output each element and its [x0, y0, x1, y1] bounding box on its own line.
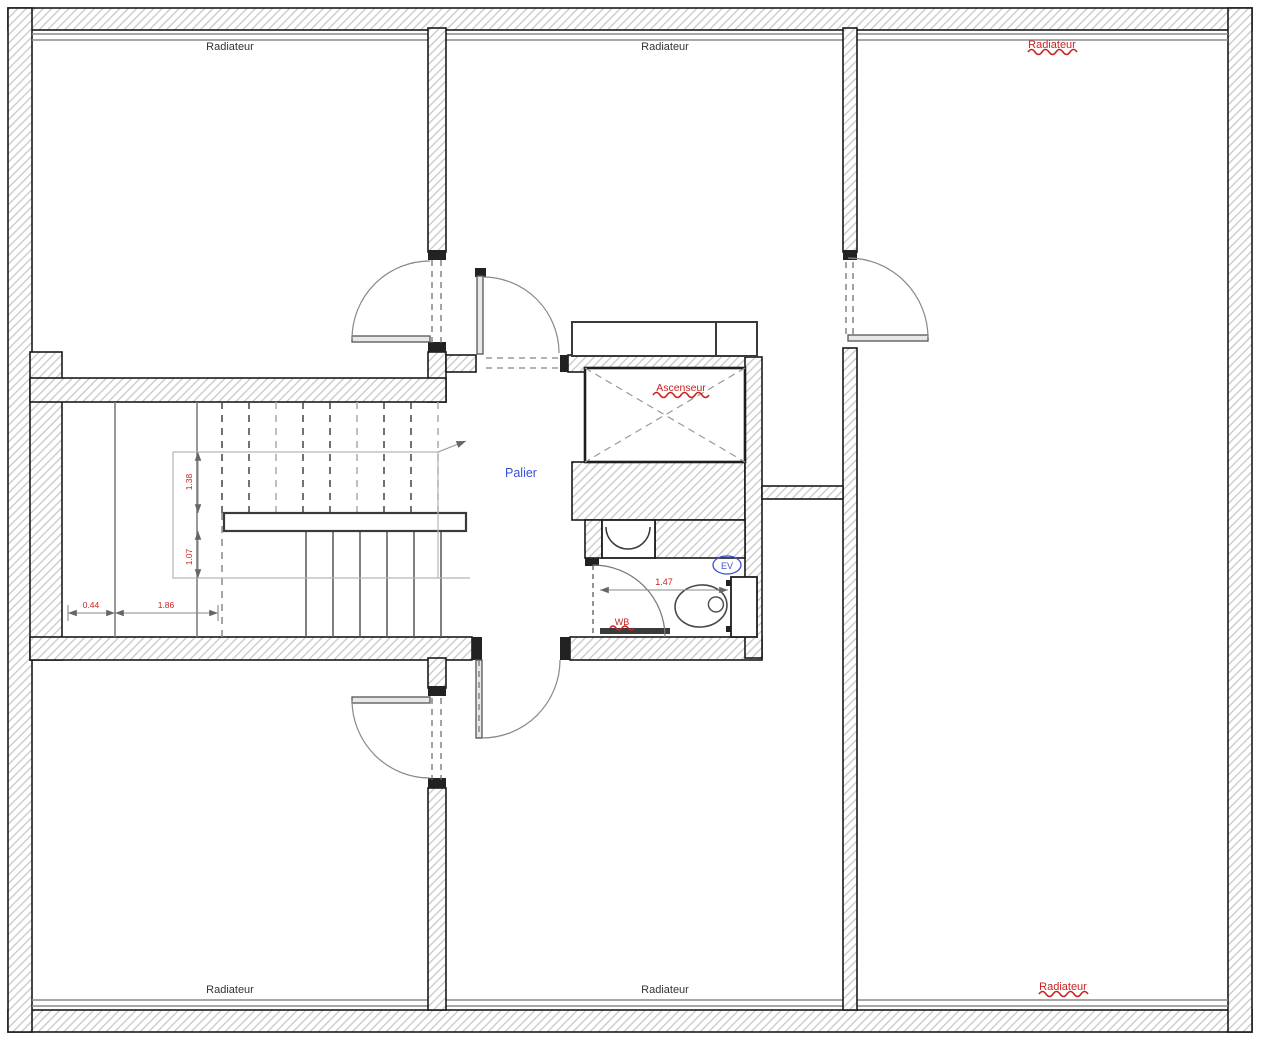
door-leaf — [352, 336, 430, 342]
label-wb: WB — [615, 617, 630, 627]
wall-v2-lower — [843, 348, 857, 1010]
door-leaf — [352, 697, 430, 703]
door-arc — [482, 660, 560, 738]
wall-sink-right — [655, 520, 745, 558]
door-arc — [483, 277, 559, 353]
label-dim-stair-rise-bottom: 1.07 — [184, 548, 194, 565]
label-radiateur-top-left: Radiateur — [206, 41, 254, 53]
wall-wc-bottom — [570, 637, 762, 660]
label-dim-stair-rise-top: 1.38 — [184, 473, 194, 490]
stair-dimensions — [68, 452, 218, 621]
door-cap — [428, 686, 446, 696]
label-radiateur-bottom-center: Radiateur — [641, 984, 689, 996]
label-radiateur-bottom-left: Radiateur — [206, 984, 254, 996]
door-cap — [428, 778, 446, 788]
door-cap — [428, 342, 446, 352]
label-radiateur-top-right: Radiateur — [1028, 39, 1076, 51]
door-arc — [848, 258, 928, 338]
door-cap — [428, 250, 446, 260]
door-cap — [560, 355, 568, 372]
label-dim-wc-width: 1.47 — [655, 577, 673, 587]
wall-elevator-block — [572, 462, 745, 520]
wall-v1-lower-b — [428, 788, 446, 1010]
wall-palier-top-left — [446, 355, 476, 372]
radiator-bottom — [32, 996, 1228, 1010]
door-right-room — [846, 258, 928, 341]
door-leaf — [848, 335, 928, 341]
door-lower-left — [352, 697, 441, 780]
door-cap — [472, 637, 482, 660]
wall-bottom — [8, 1010, 1252, 1032]
label-dim-stair-run-small: 0.44 — [83, 600, 100, 610]
wall-v1-upper — [428, 28, 446, 252]
door-upper-left — [352, 260, 441, 344]
label-dim-stair-run-large: 1.86 — [158, 600, 175, 610]
door-palier-top — [477, 276, 560, 368]
floor-plan-drawing: Radiateur Radiateur Radiateur Radiateur … — [0, 0, 1280, 1040]
wall-top — [8, 8, 1252, 30]
closet-outline — [572, 322, 757, 356]
wall-stub-right — [762, 486, 843, 499]
wall-right — [1228, 8, 1252, 1032]
label-ev: EV — [721, 561, 733, 571]
door-palier-bottom — [476, 660, 560, 738]
wall-v2-upper — [843, 28, 857, 252]
closet — [572, 322, 757, 356]
wc-threshold-bar — [600, 628, 670, 634]
stair-direction-arrow — [438, 441, 466, 452]
floor-plan-canvas: Radiateur Radiateur Radiateur Radiateur … — [0, 0, 1280, 1040]
door-leaf — [477, 276, 483, 354]
wall-left — [8, 8, 32, 1032]
wall-stair-top — [30, 378, 446, 402]
toilet-cistern — [731, 577, 757, 637]
label-radiateur-top-center: Radiateur — [641, 41, 689, 53]
door-arc — [352, 261, 430, 339]
door-cap — [560, 637, 570, 660]
door-arc — [352, 700, 430, 778]
wall-stair-bottom — [30, 637, 472, 660]
label-palier: Palier — [505, 466, 537, 480]
stair-handrail — [224, 513, 466, 531]
label-radiateur-bottom-right: Radiateur — [1039, 981, 1087, 993]
wall-sink-left — [585, 520, 602, 558]
wall-v1-lower-a — [428, 658, 446, 688]
